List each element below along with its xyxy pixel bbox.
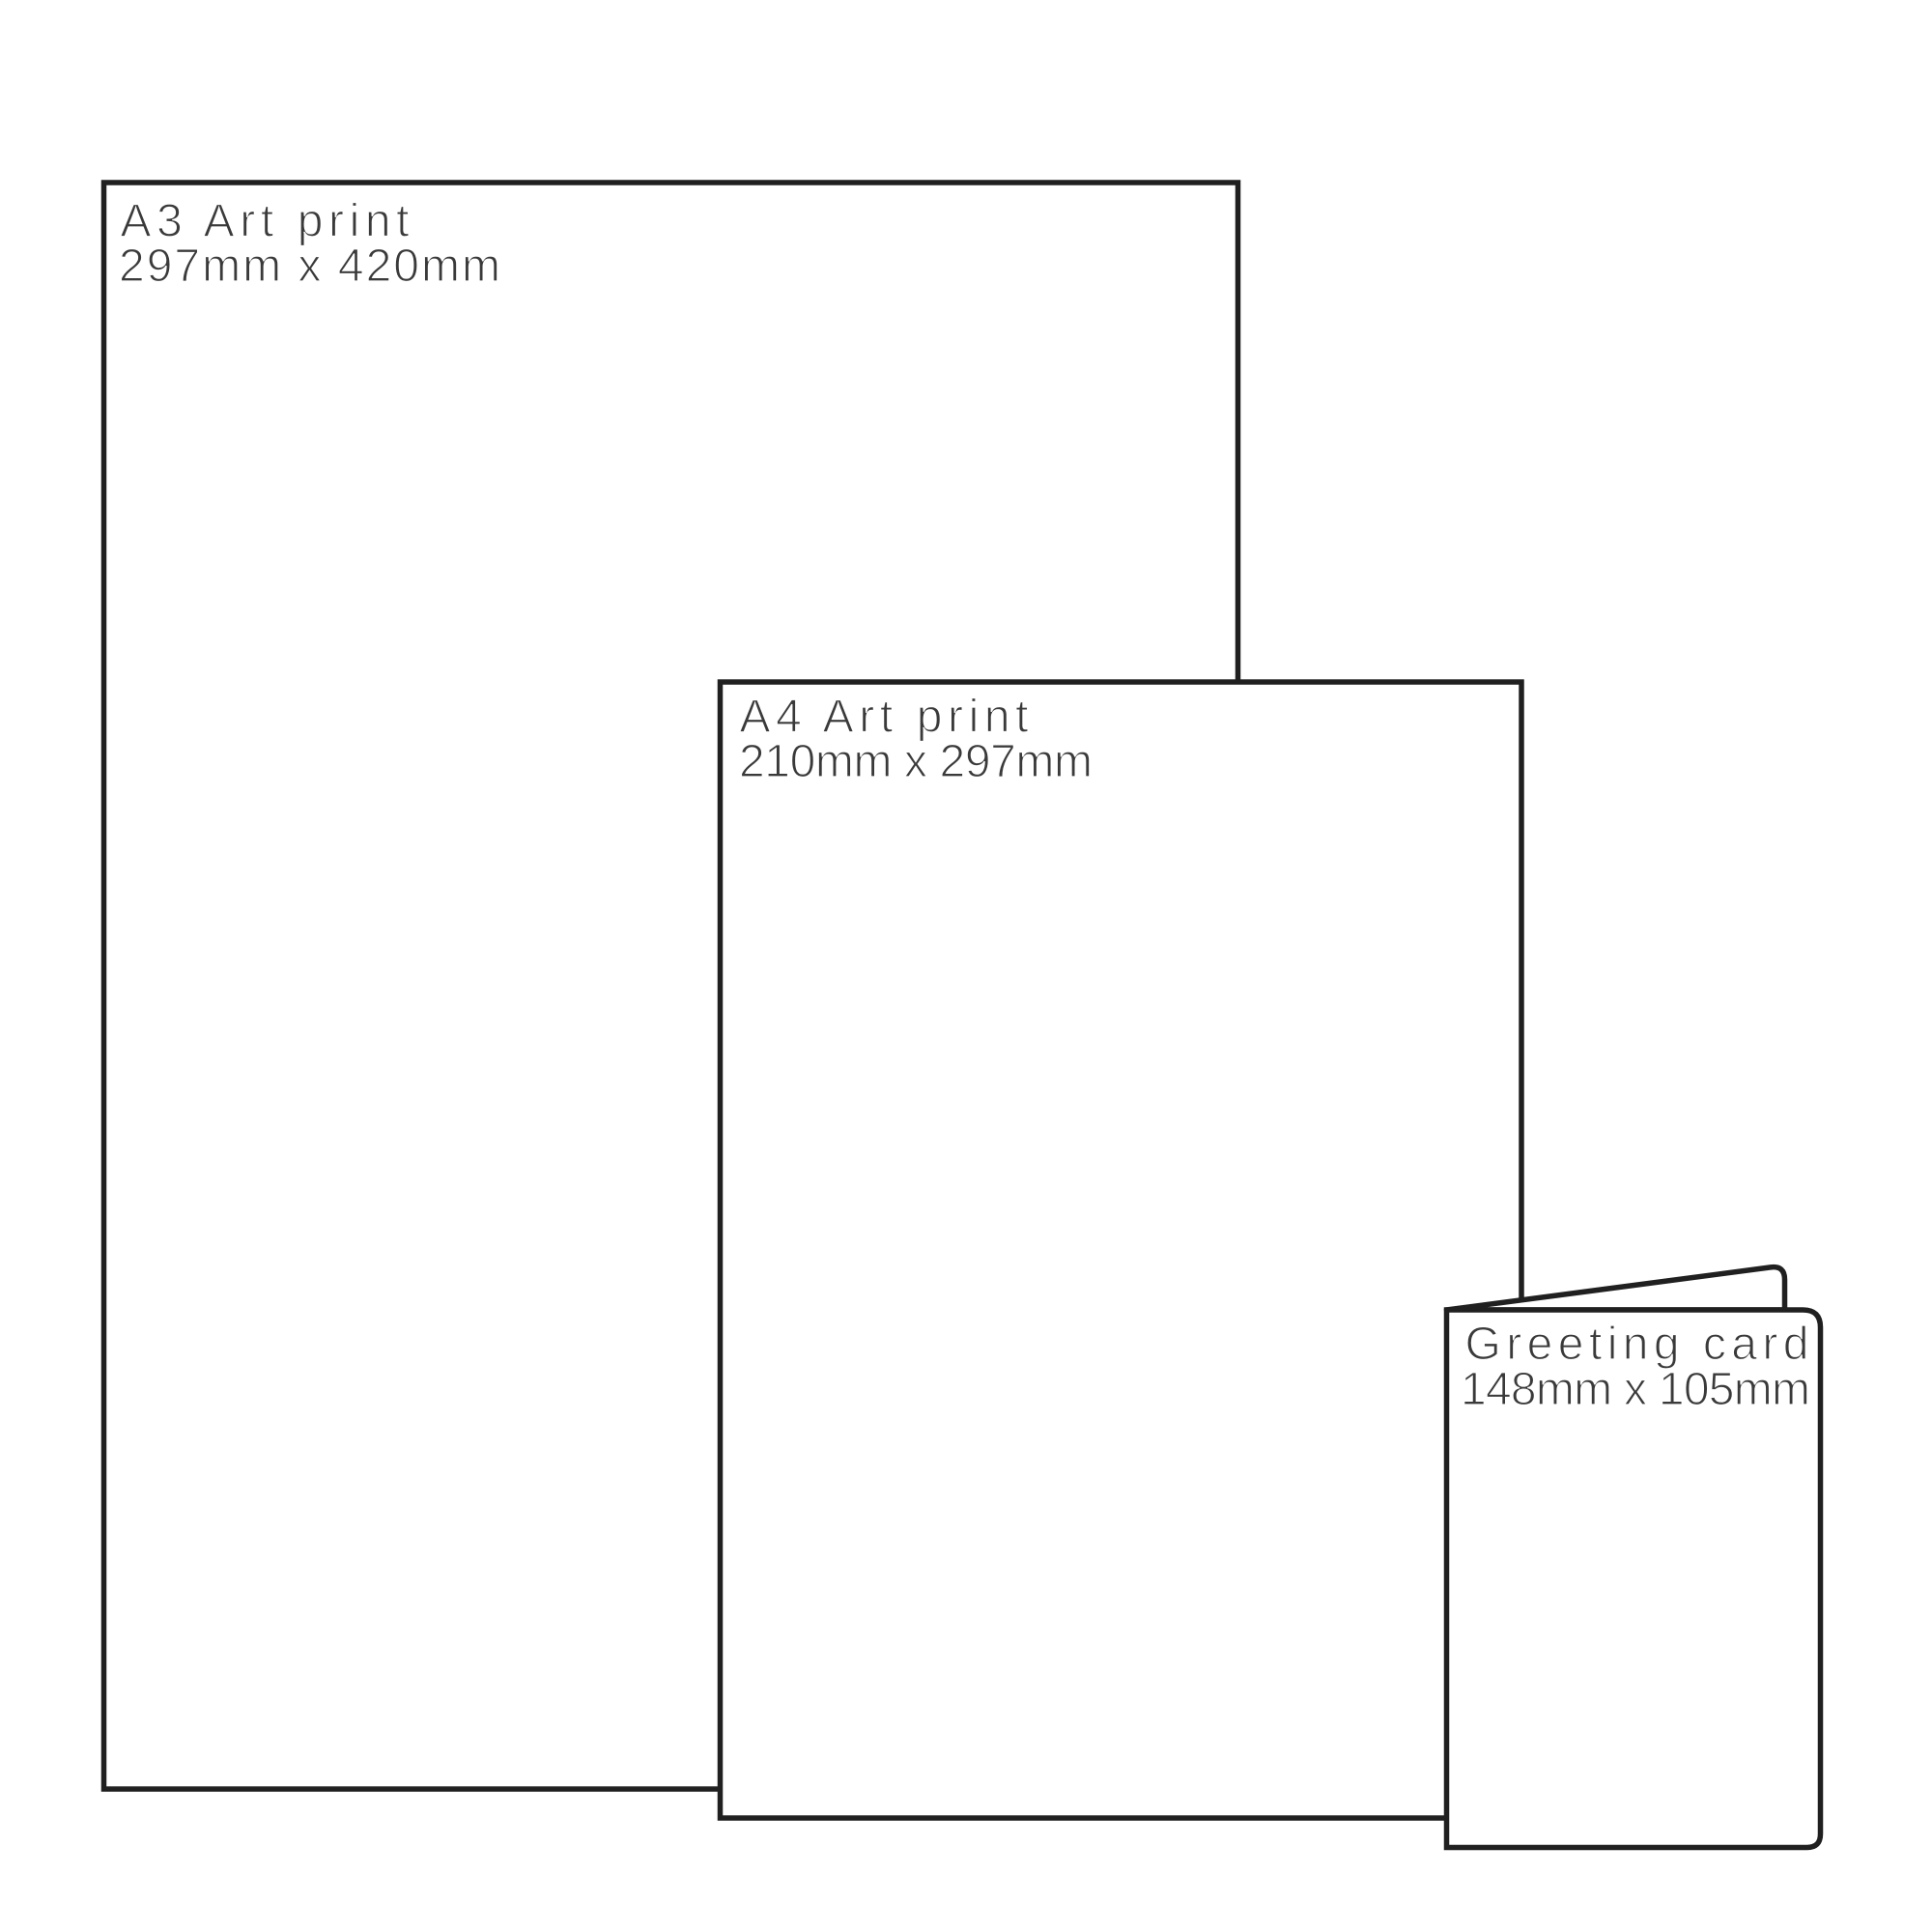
svg-text:210mm x 297mm: 210mm x 297mm bbox=[739, 736, 1093, 787]
svg-text:148mm x 105mm: 148mm x 105mm bbox=[1461, 1364, 1810, 1415]
svg-text:A3 Art print: A3 Art print bbox=[121, 196, 410, 247]
svg-text:297mm x 420mm: 297mm x 420mm bbox=[119, 241, 500, 292]
svg-text:A4 Art print: A4 Art print bbox=[740, 692, 1029, 743]
